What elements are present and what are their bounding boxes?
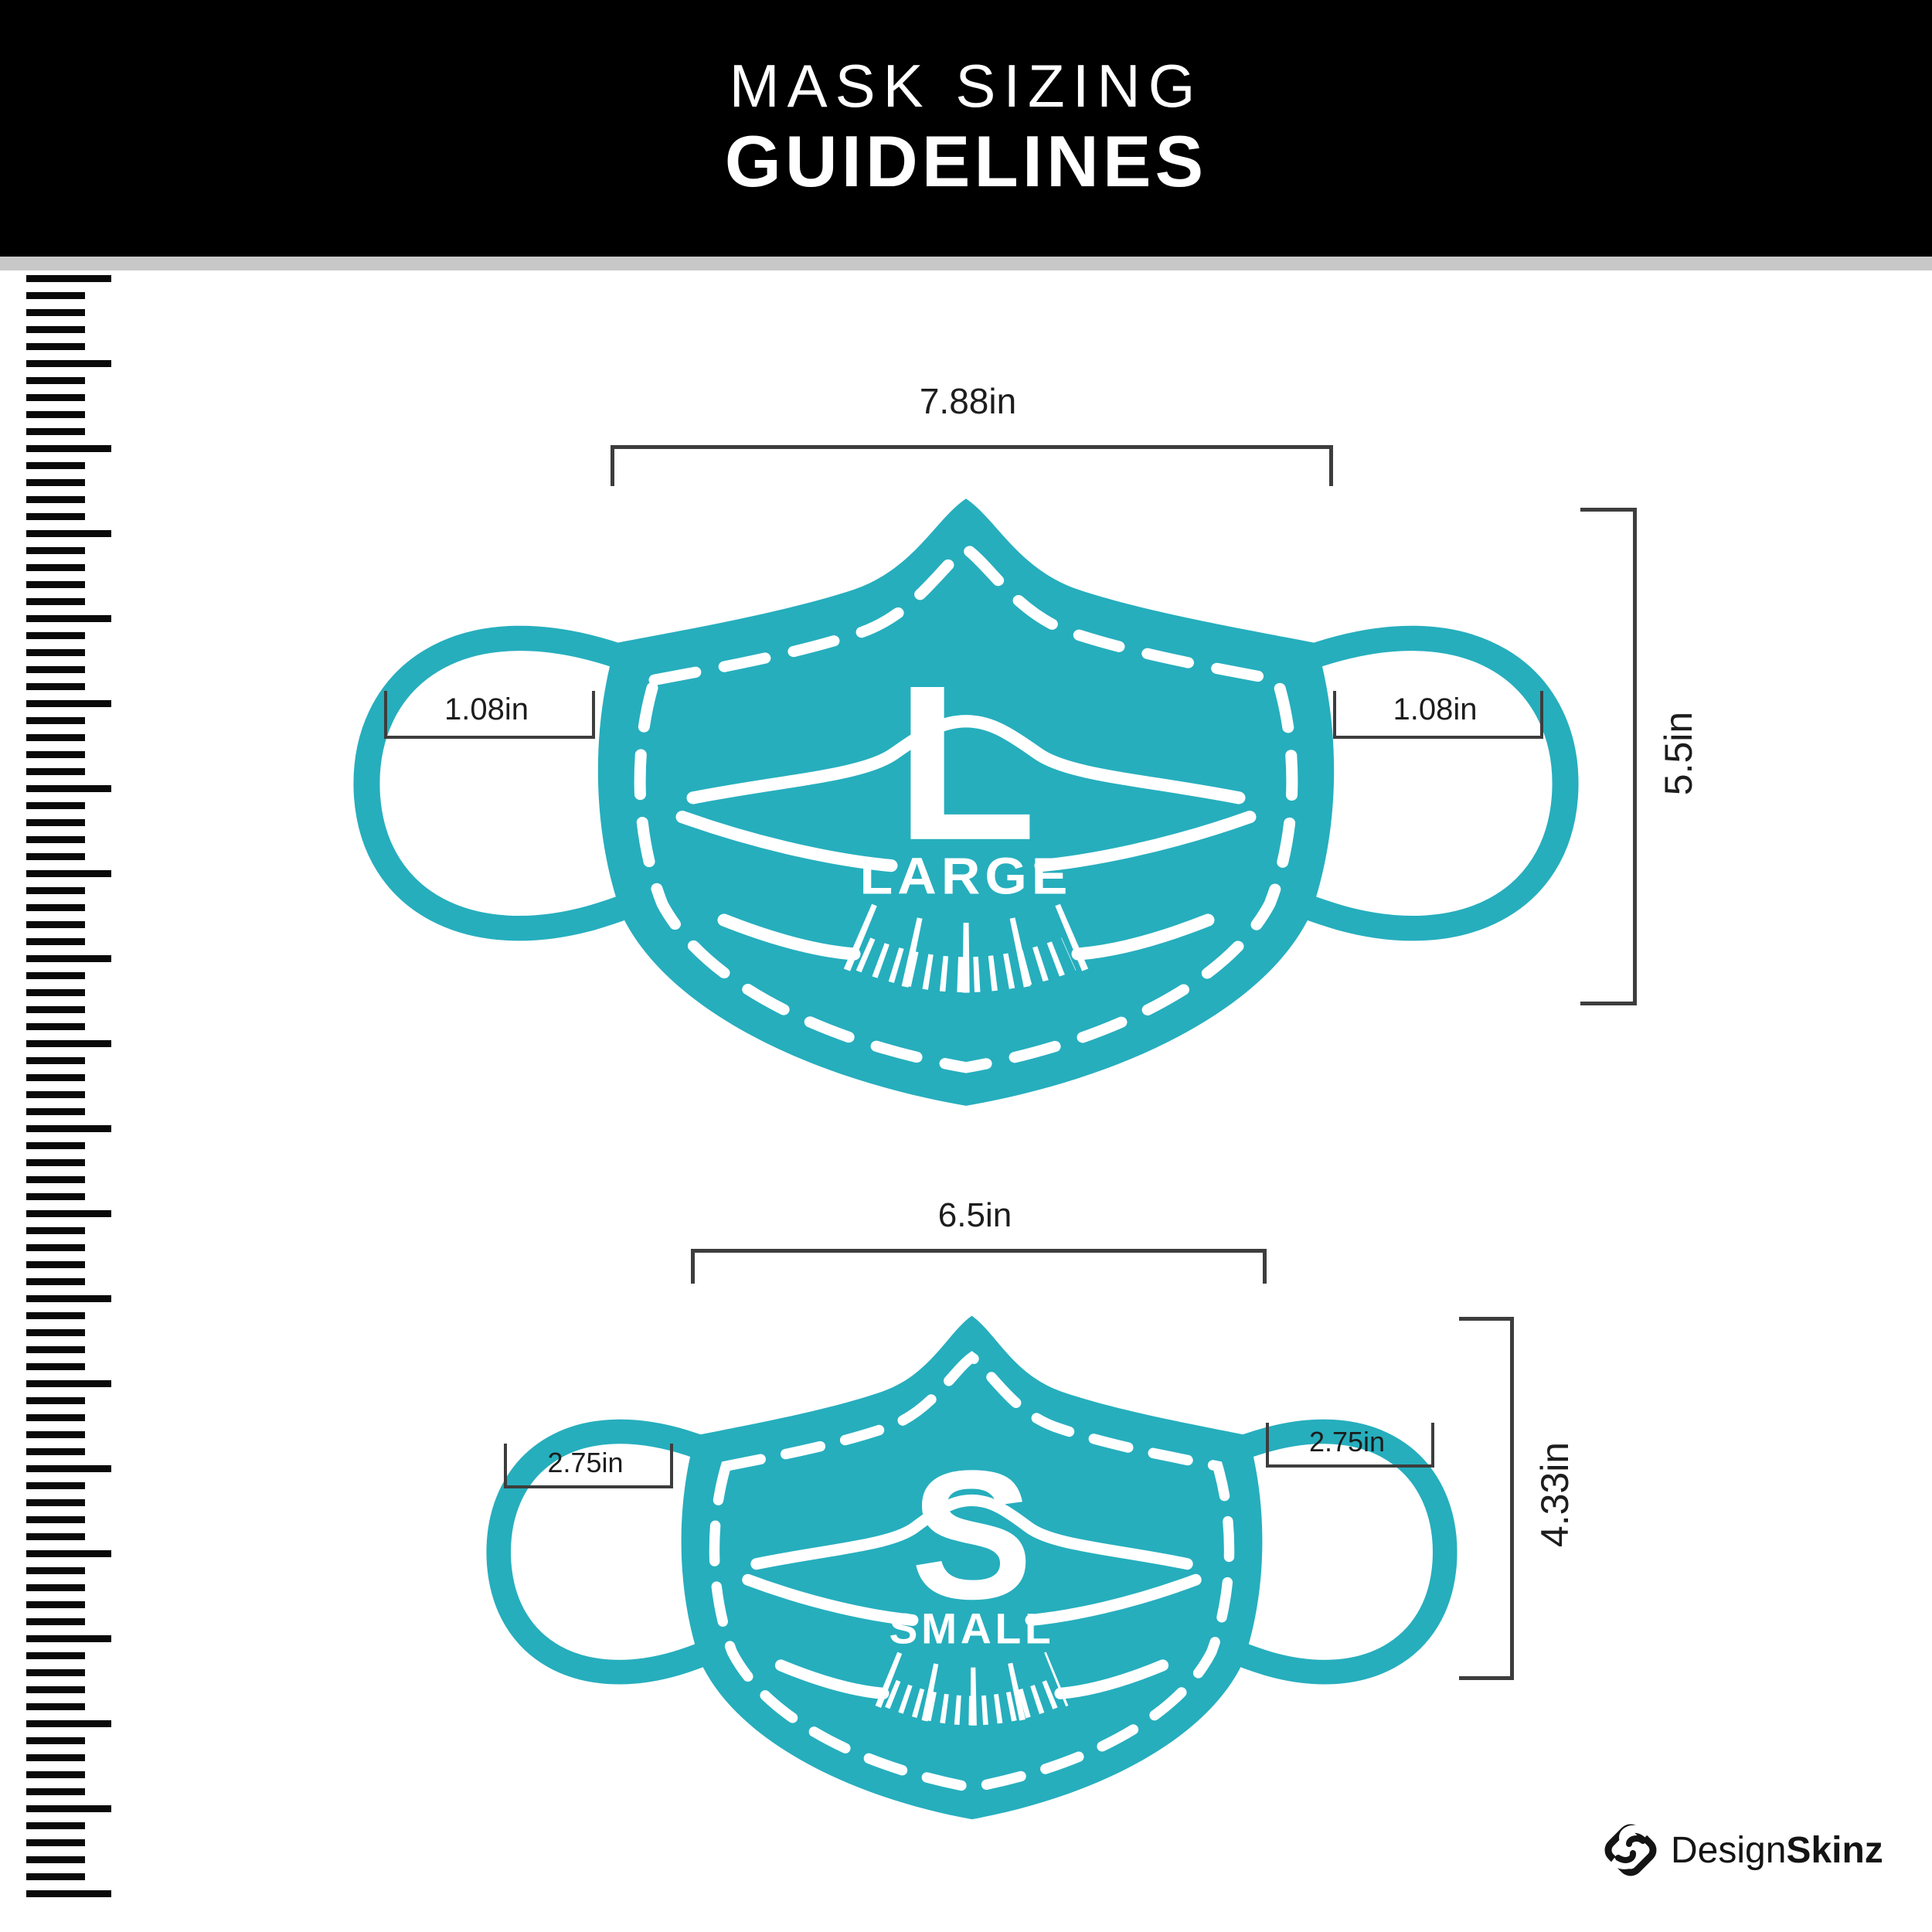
small-ear-left-label: 2.75in: [504, 1447, 667, 1479]
ruler-long-ticks: [26, 275, 111, 1903]
small-height-label: 4.33in: [1532, 1442, 1577, 1547]
large-height-bracket: [1580, 508, 1637, 1005]
brand-name-bold: Skinz: [1786, 1830, 1883, 1871]
page-title-line2: GUIDELINES: [725, 120, 1208, 203]
large-ear-left-label: 1.08in: [384, 692, 589, 727]
brand-name-regular: Design: [1671, 1830, 1786, 1871]
small-width-label: 6.5in: [691, 1196, 1259, 1235]
small-width-bracket: [691, 1249, 1267, 1284]
large-size-label: LARGE: [860, 848, 1073, 905]
large-width-bracket: [611, 445, 1333, 486]
large-ear-right-label: 1.08in: [1333, 692, 1537, 727]
page: { "header": { "line1": "MASK SIZING", "l…: [0, 0, 1932, 1932]
header-banner: MASK SIZING GUIDELINES: [0, 0, 1932, 257]
page-title-line1: MASK SIZING: [730, 53, 1203, 120]
large-mask-illustration: L LARGE: [344, 487, 1588, 1121]
small-size-label: SMALL: [889, 1604, 1055, 1652]
brand-logo: DesignSkinz: [1598, 1818, 1883, 1883]
large-height-label: 5.5in: [1656, 712, 1701, 795]
brand-logo-icon: [1598, 1818, 1663, 1883]
ruler-icon: [26, 275, 113, 1903]
small-height-bracket: [1459, 1317, 1514, 1680]
large-width-label: 7.88in: [611, 380, 1325, 422]
header-divider: [0, 257, 1932, 270]
small-mask-illustration: S SMALL: [481, 1306, 1463, 1832]
small-ear-right-label: 2.75in: [1266, 1426, 1428, 1458]
brand-name: DesignSkinz: [1671, 1829, 1883, 1872]
